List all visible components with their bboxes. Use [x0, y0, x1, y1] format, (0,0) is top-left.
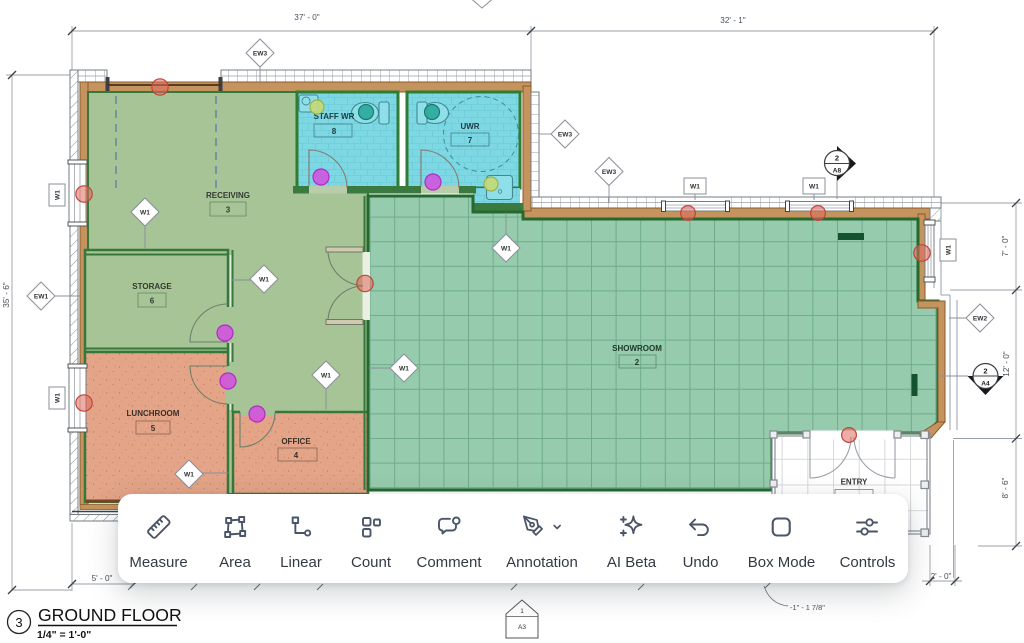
- svg-text:2: 2: [983, 367, 987, 376]
- svg-text:EW3: EW3: [602, 169, 617, 176]
- svg-text:1: 1: [520, 608, 524, 615]
- svg-text:-1" - 1 7/8": -1" - 1 7/8": [790, 603, 825, 612]
- svg-text:W1: W1: [690, 183, 700, 190]
- svg-text:W1: W1: [54, 393, 61, 403]
- svg-text:RECEIVING: RECEIVING: [206, 191, 250, 200]
- svg-text:OFFICE: OFFICE: [281, 437, 311, 446]
- svg-text:8: 8: [332, 127, 337, 136]
- svg-text:1/4" = 1'-0": 1/4" = 1'-0": [37, 629, 91, 641]
- svg-text:W1: W1: [945, 245, 952, 255]
- svg-text:8' - 6": 8' - 6": [1001, 477, 1010, 498]
- svg-text:EW3: EW3: [558, 131, 573, 138]
- svg-text:EW2: EW2: [973, 315, 988, 322]
- svg-text:4: 4: [294, 451, 299, 460]
- svg-text:W1: W1: [809, 183, 819, 190]
- svg-text:3: 3: [15, 615, 22, 630]
- svg-text:3: 3: [226, 206, 231, 215]
- svg-text:32' - 1": 32' - 1": [720, 16, 745, 25]
- svg-text:STORAGE: STORAGE: [132, 282, 172, 291]
- svg-text:W1: W1: [321, 372, 331, 379]
- svg-text:W1: W1: [501, 245, 511, 252]
- svg-text:W1: W1: [399, 365, 409, 372]
- svg-text:2' - 0": 2' - 0": [931, 572, 952, 581]
- svg-text:A8: A8: [833, 168, 842, 175]
- svg-text:A4: A4: [981, 381, 990, 388]
- svg-text:W1: W1: [54, 190, 61, 200]
- svg-text:W1: W1: [140, 209, 150, 216]
- svg-text:ENTRY: ENTRY: [841, 478, 868, 487]
- svg-text:5' - 0": 5' - 0": [92, 574, 113, 583]
- svg-text:EW1: EW1: [34, 293, 49, 300]
- svg-text:37' - 0": 37' - 0": [294, 13, 319, 22]
- svg-text:EW3: EW3: [253, 50, 268, 57]
- svg-text:A3: A3: [518, 624, 526, 631]
- svg-text:2: 2: [835, 154, 839, 163]
- svg-text:6: 6: [150, 297, 155, 306]
- svg-text:7' - 0": 7' - 0": [1001, 235, 1010, 256]
- svg-text:SHOWROOM: SHOWROOM: [612, 344, 662, 353]
- svg-text:12' - 0": 12' - 0": [1002, 351, 1011, 376]
- svg-text:35' - 6": 35' - 6": [2, 282, 11, 307]
- svg-text:5: 5: [151, 424, 156, 433]
- svg-text:W1: W1: [259, 276, 269, 283]
- svg-text:LUNCHROOM: LUNCHROOM: [127, 409, 180, 418]
- svg-text:GROUND FLOOR: GROUND FLOOR: [38, 605, 182, 625]
- svg-text:UWR: UWR: [460, 122, 479, 131]
- svg-text:7: 7: [468, 136, 473, 145]
- svg-text:W1: W1: [184, 471, 194, 478]
- svg-text:2: 2: [635, 358, 640, 367]
